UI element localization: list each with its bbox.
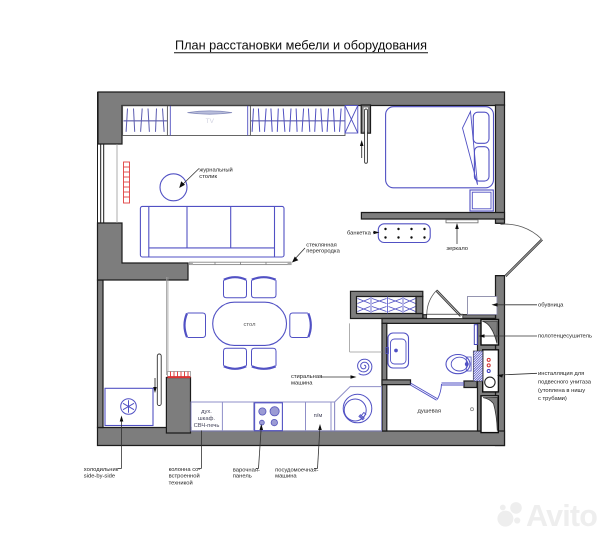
svg-text:п/м: п/м (314, 413, 323, 419)
svg-text:душевая: душевая (418, 408, 442, 414)
svg-text:подвесного унитаза: подвесного унитаза (538, 379, 592, 385)
svg-text:холодильник: холодильник (84, 467, 119, 473)
svg-text:инсталляция для: инсталляция для (538, 371, 584, 377)
svg-text:с трубами): с трубами) (538, 396, 567, 402)
svg-text:колонна со-: колонна со- (169, 467, 201, 473)
svg-text:обувница: обувница (538, 302, 564, 308)
svg-text:План расстановки мебели и обор: План расстановки мебели и оборудования (175, 39, 427, 53)
svg-text:банкетка: банкетка (347, 231, 372, 237)
svg-text:варочная-: варочная- (233, 467, 260, 473)
svg-text:техникой: техникой (169, 479, 193, 486)
svg-text:журнальный: журнальный (199, 166, 232, 173)
svg-text:(утоплена в нишу: (утоплена в нишу (538, 388, 585, 394)
svg-text:TV: TV (206, 118, 215, 125)
svg-text:шкаф.: шкаф. (198, 416, 215, 422)
svg-text:стиральная: стиральная (291, 374, 322, 380)
svg-text:встроенной: встроенной (169, 473, 200, 480)
svg-text:зеркало: зеркало (446, 246, 468, 252)
svg-text:машина: машина (291, 380, 313, 386)
svg-text:посудомоечная-: посудомоечная- (275, 467, 318, 473)
svg-text:перегородка: перегородка (306, 249, 340, 255)
svg-text:стол: стол (244, 322, 256, 328)
svg-text:Avito: Avito (526, 499, 597, 533)
svg-text:столик: столик (199, 174, 217, 180)
svg-text:полотенцесушитель: полотенцесушитель (538, 334, 592, 340)
svg-text:side-by-side: side-by-side (84, 474, 115, 480)
svg-text:панель: панель (233, 474, 252, 480)
svg-text:дух.: дух. (201, 409, 212, 415)
svg-text:машина: машина (275, 474, 297, 480)
svg-text:СВЧ-печь: СВЧ-печь (194, 423, 220, 429)
